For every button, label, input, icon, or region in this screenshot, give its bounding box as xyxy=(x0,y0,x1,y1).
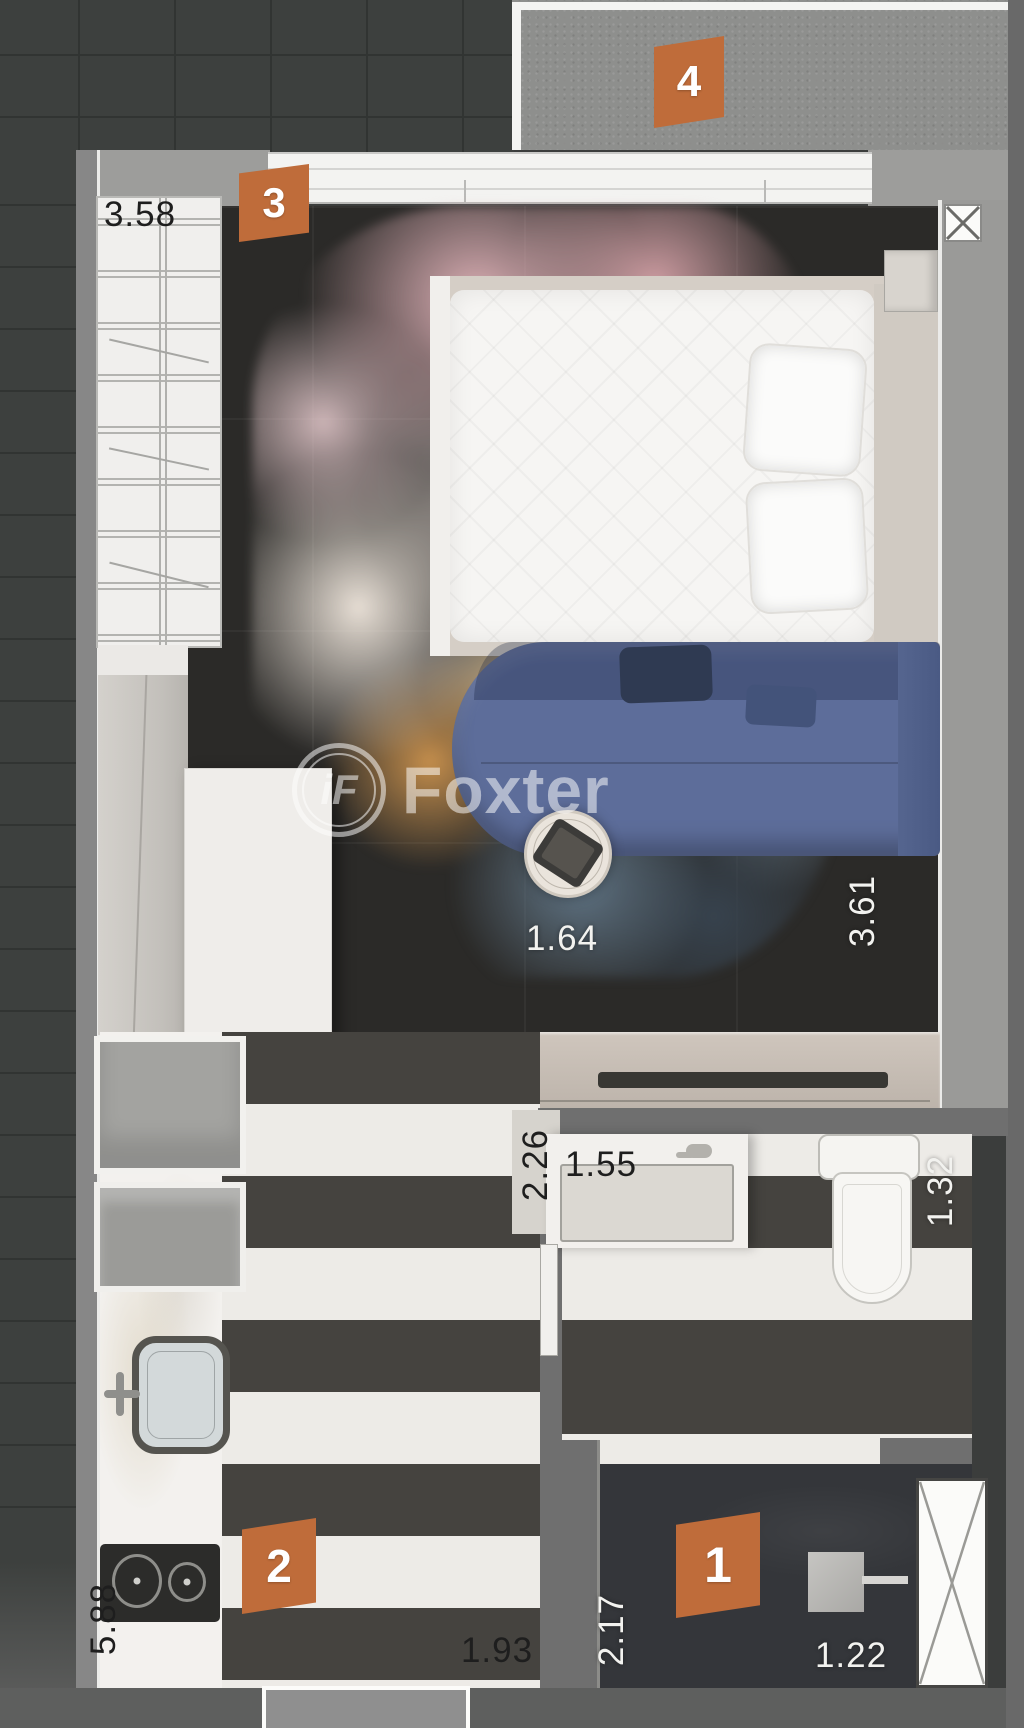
measurement-kitchen-run: 5.88 xyxy=(84,1583,124,1655)
entry-door-threshold xyxy=(262,1686,470,1728)
balcony-area xyxy=(512,0,1008,150)
measurement-dining-depth: 2.26 xyxy=(516,1129,556,1201)
measurement-bathroom-width: 1.32 xyxy=(921,1155,961,1227)
bathroom-door-leaf xyxy=(540,1244,558,1356)
sofa-cushion xyxy=(619,644,713,703)
kitchen-faucet-icon xyxy=(116,1372,124,1416)
pillow xyxy=(742,342,869,478)
exterior-band-right xyxy=(1006,0,1024,1728)
wardrobe-closet xyxy=(96,196,222,648)
sofa-cushion xyxy=(745,684,817,728)
window-divider xyxy=(764,180,766,202)
exterior-band-bottom xyxy=(0,1688,1024,1728)
wall-bathroom-top xyxy=(538,1108,1008,1136)
kitchen-appliance xyxy=(94,1182,246,1292)
wall-right-bedroom xyxy=(938,200,1008,1108)
window-divider xyxy=(464,180,466,202)
bathroom-faucet-icon xyxy=(686,1144,712,1158)
exterior-dark-tiles-top xyxy=(0,0,514,152)
floorplan-canvas: 4 3 2 1 3.58 1.64 3.61 2.26 1.55 1.32 5.… xyxy=(0,0,1024,1728)
toilet-bowl xyxy=(832,1172,912,1304)
brand-logo-icon: iF xyxy=(292,743,386,837)
measurement-hall-width: 1.22 xyxy=(815,1636,887,1676)
window-rail xyxy=(268,168,872,170)
window-rail xyxy=(268,188,872,190)
sliding-window xyxy=(268,152,872,204)
wall-top-right xyxy=(868,150,1008,206)
wall-bathroom-bottom xyxy=(880,1438,972,1466)
sofa-armrest xyxy=(898,642,940,856)
balcony-frame-top xyxy=(512,2,1008,10)
curtain-panel xyxy=(98,645,188,1035)
marker-2[interactable]: 2 xyxy=(242,1518,316,1614)
wall-hall-left xyxy=(540,1440,600,1688)
hanger-icon xyxy=(109,447,210,470)
tv-shelf-line xyxy=(520,1100,930,1102)
burner-icon xyxy=(168,1562,206,1602)
measurement-vanity-width: 1.55 xyxy=(565,1145,637,1185)
pillow xyxy=(745,477,870,615)
balcony-frame-left xyxy=(512,2,521,150)
marker-1[interactable]: 1 xyxy=(676,1512,760,1618)
measurement-living-depth: 3.61 xyxy=(843,875,883,947)
duct-cross-icon xyxy=(944,204,982,242)
nightstand xyxy=(884,250,938,312)
brand-watermark: iF Foxter xyxy=(292,738,672,842)
cross-lines-icon xyxy=(919,1481,985,1685)
hanger-icon xyxy=(109,562,209,589)
exterior-dark-tiles-left xyxy=(0,150,78,1564)
measurement-closet-width: 3.58 xyxy=(104,195,176,235)
tv-screen xyxy=(598,1072,888,1088)
measurement-hall-depth: 2.17 xyxy=(592,1594,632,1666)
measurement-dining-width: 1.93 xyxy=(461,1631,533,1671)
marker-4[interactable]: 4 xyxy=(654,36,724,128)
cross-lines-icon xyxy=(946,206,980,240)
brand-name: Foxter xyxy=(402,752,610,828)
shaft-cross-icon xyxy=(916,1478,988,1688)
entry-door-pivot xyxy=(808,1552,864,1612)
exterior-band-left-lower xyxy=(0,1562,78,1690)
bed-headboard xyxy=(874,284,938,650)
measurement-living-rug-width: 1.64 xyxy=(526,919,598,959)
marker-3[interactable]: 3 xyxy=(239,164,309,242)
entry-door-line xyxy=(862,1576,908,1584)
kitchen-sink xyxy=(132,1336,230,1454)
brand-monogram: iF xyxy=(320,766,357,814)
kitchen-appliance xyxy=(94,1036,246,1174)
bed-footboard xyxy=(430,276,450,656)
hanger-icon xyxy=(109,339,209,364)
